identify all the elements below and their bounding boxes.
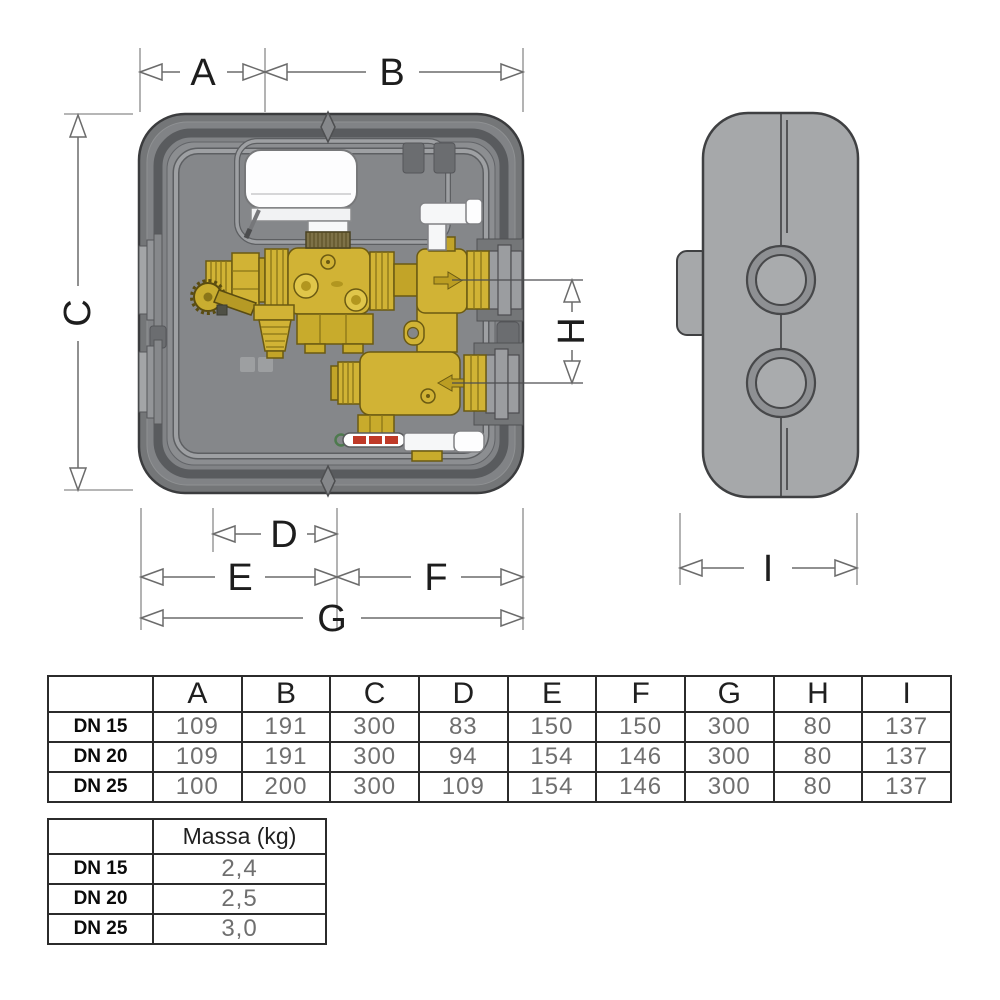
side-port-lower: [747, 349, 815, 417]
dim-cell: 154: [508, 742, 597, 772]
row-label: DN 15: [48, 854, 153, 884]
corner-cell: [48, 676, 153, 712]
dim-cell: 146: [596, 742, 685, 772]
row-label: DN 25: [48, 914, 153, 944]
dim-cell: 109: [153, 712, 242, 742]
dim-label-i: I: [763, 548, 774, 590]
col-header: C: [330, 676, 419, 712]
row-label: DN 25: [48, 772, 153, 802]
row-label: DN 20: [48, 742, 153, 772]
dim-cell: 191: [242, 742, 331, 772]
dim-label-a: A: [190, 52, 216, 94]
dim-cell: 300: [330, 742, 419, 772]
dim-label-d: D: [270, 514, 297, 556]
page: A B C H D E F G: [0, 0, 1000, 1000]
col-header: E: [508, 676, 597, 712]
dim-cell: 83: [419, 712, 508, 742]
dim-cell: 137: [862, 772, 951, 802]
dim-label-c: C: [57, 299, 99, 326]
hose-barb: [267, 351, 283, 358]
table-row: DN 25 100 200 300 109 154 146 300 80 137: [48, 772, 951, 802]
dimension-i: I: [680, 513, 857, 590]
knurled-ring: [306, 232, 350, 248]
col-header: B: [242, 676, 331, 712]
mass-cell: 3,0: [153, 914, 326, 944]
dim-cell: 150: [508, 712, 597, 742]
table-row: DN 25 3,0: [48, 914, 326, 944]
dim-label-e: E: [227, 557, 252, 599]
dim-label-f: F: [424, 557, 447, 599]
table-row: DN 15 109 191 300 83 150 150 300 80 137: [48, 712, 951, 742]
dimensions-table-header-row: A B C D E F G H I: [48, 676, 951, 712]
dim-cell: 137: [862, 742, 951, 772]
dim-cell: 137: [862, 712, 951, 742]
dimensions-table: A B C D E F G H I DN 15 109 191 300 83 1…: [47, 675, 952, 803]
side-view: [677, 113, 858, 497]
lower-valve-lever: [404, 431, 484, 452]
col-header: I: [862, 676, 951, 712]
front-view: [139, 112, 523, 496]
dim-cell: 300: [330, 712, 419, 742]
dim-cell: 146: [596, 772, 685, 802]
mass-cell: 2,4: [153, 854, 326, 884]
dim-cell: 300: [685, 772, 774, 802]
dim-cell: 94: [419, 742, 508, 772]
dim-label-g: G: [317, 598, 347, 640]
dim-label-b: B: [379, 52, 404, 94]
mass-cell: 2,5: [153, 884, 326, 914]
dimension-c: C: [57, 114, 133, 490]
corner-cell: [48, 819, 153, 854]
thermometer-strip: [336, 433, 406, 447]
dim-cell: 200: [242, 772, 331, 802]
dim-cell: 80: [774, 712, 863, 742]
side-port-upper: [747, 246, 815, 314]
mass-header: Massa (kg): [153, 819, 326, 854]
dim-cell: 80: [774, 742, 863, 772]
dim-cell: 150: [596, 712, 685, 742]
col-header: F: [596, 676, 685, 712]
dim-cell: 300: [685, 712, 774, 742]
dimension-e-f: E F: [141, 557, 523, 599]
dim-cell: 191: [242, 712, 331, 742]
technical-drawing: A B C H D E F G: [0, 0, 1000, 665]
col-header: D: [419, 676, 508, 712]
table-row: DN 20 109 191 300 94 154 146 300 80 137: [48, 742, 951, 772]
dimension-a-b: A B: [140, 48, 523, 112]
col-header: A: [153, 676, 242, 712]
col-header: H: [774, 676, 863, 712]
row-label: DN 15: [48, 712, 153, 742]
mounting-eyelet: [408, 328, 419, 339]
table-row: DN 20 2,5: [48, 884, 326, 914]
dim-cell: 80: [774, 772, 863, 802]
mass-table-header-row: Massa (kg): [48, 819, 326, 854]
dimension-g: G: [141, 598, 523, 640]
dim-cell: 109: [153, 742, 242, 772]
tray-slot: [434, 143, 455, 173]
row-label: DN 20: [48, 884, 153, 914]
tray-slot: [403, 143, 424, 173]
dim-cell: 100: [153, 772, 242, 802]
dim-cell: 300: [330, 772, 419, 802]
dim-cell: 154: [508, 772, 597, 802]
dim-cell: 300: [685, 742, 774, 772]
mass-table: Massa (kg) DN 15 2,4 DN 20 2,5 DN 25 3,0: [47, 818, 327, 945]
col-header: G: [685, 676, 774, 712]
dim-label-h: H: [551, 317, 593, 344]
table-row: DN 15 2,4: [48, 854, 326, 884]
dim-cell: 109: [419, 772, 508, 802]
